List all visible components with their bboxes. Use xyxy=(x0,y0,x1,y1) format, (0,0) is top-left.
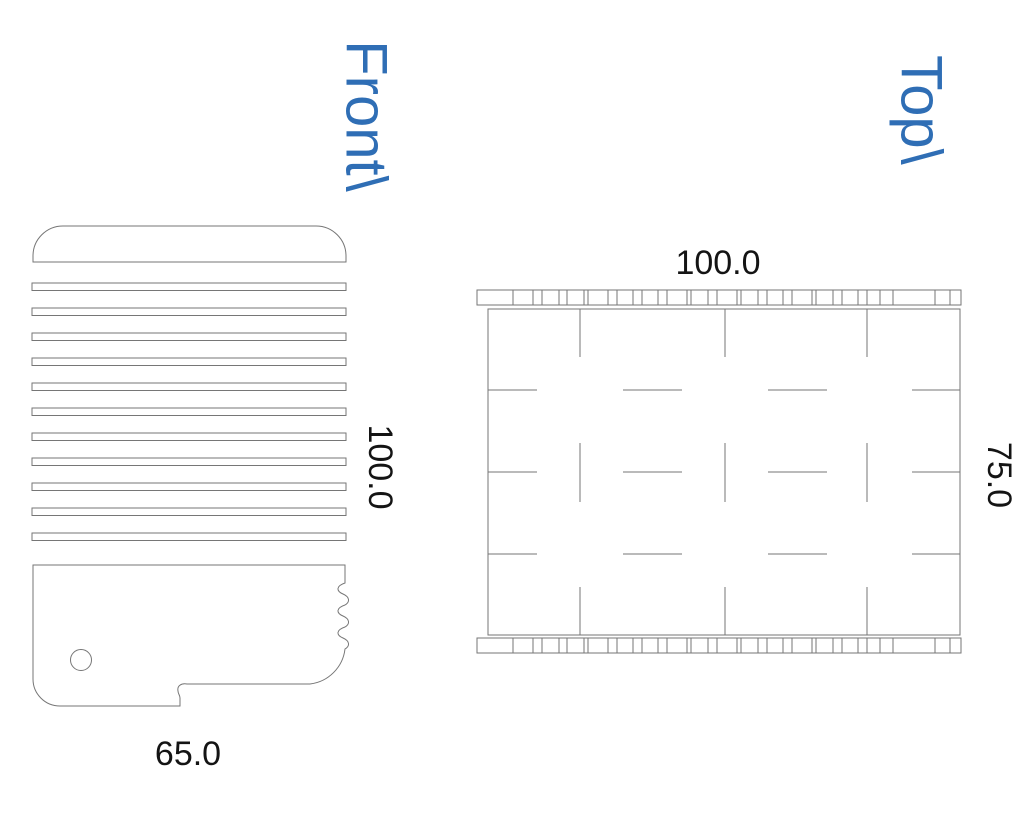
front-cap-outline xyxy=(33,226,346,262)
fin-slat xyxy=(32,533,346,541)
cap-path xyxy=(33,226,346,262)
top-view-depth-dimension: 75.0 xyxy=(980,442,1018,508)
fin-slat xyxy=(32,433,346,441)
front-mounting-hole xyxy=(71,650,92,671)
top-hidden-lines xyxy=(488,309,960,635)
top-body-outline xyxy=(488,309,960,635)
top-view-width-dimension: 100.0 xyxy=(675,244,760,282)
front-body-outline xyxy=(33,565,349,706)
fin-slat xyxy=(32,508,346,516)
fin-slat xyxy=(32,283,346,291)
top-view-label: Top\ xyxy=(889,55,954,166)
hole-circle xyxy=(71,650,92,671)
front-view-height-dimension: 100.0 xyxy=(361,424,399,509)
front-view-label: Front\ xyxy=(334,40,399,192)
fin-slat xyxy=(32,333,346,341)
front-view xyxy=(32,226,349,706)
fin-slat xyxy=(32,483,346,491)
fin-slat xyxy=(32,458,346,466)
fin-slat xyxy=(32,358,346,366)
fin-slat xyxy=(32,383,346,391)
top-fin-tick-marks xyxy=(513,290,950,653)
fin-slat xyxy=(32,308,346,316)
fin-strip xyxy=(477,290,961,305)
body-rect xyxy=(488,309,960,635)
front-fin-slats xyxy=(32,283,346,541)
front-view-width-dimension: 65.0 xyxy=(155,735,221,773)
cad-drawing-svg: Front\ Top\ 100.0 75.0 100.0 65.0 xyxy=(0,0,1024,819)
top-view xyxy=(477,290,961,653)
top-fin-edge-strips xyxy=(477,290,961,653)
fin-slat xyxy=(32,408,346,416)
fin-strip xyxy=(477,638,961,653)
cad-drawing-sheet: Front\ Top\ 100.0 75.0 100.0 65.0 xyxy=(0,0,1024,819)
